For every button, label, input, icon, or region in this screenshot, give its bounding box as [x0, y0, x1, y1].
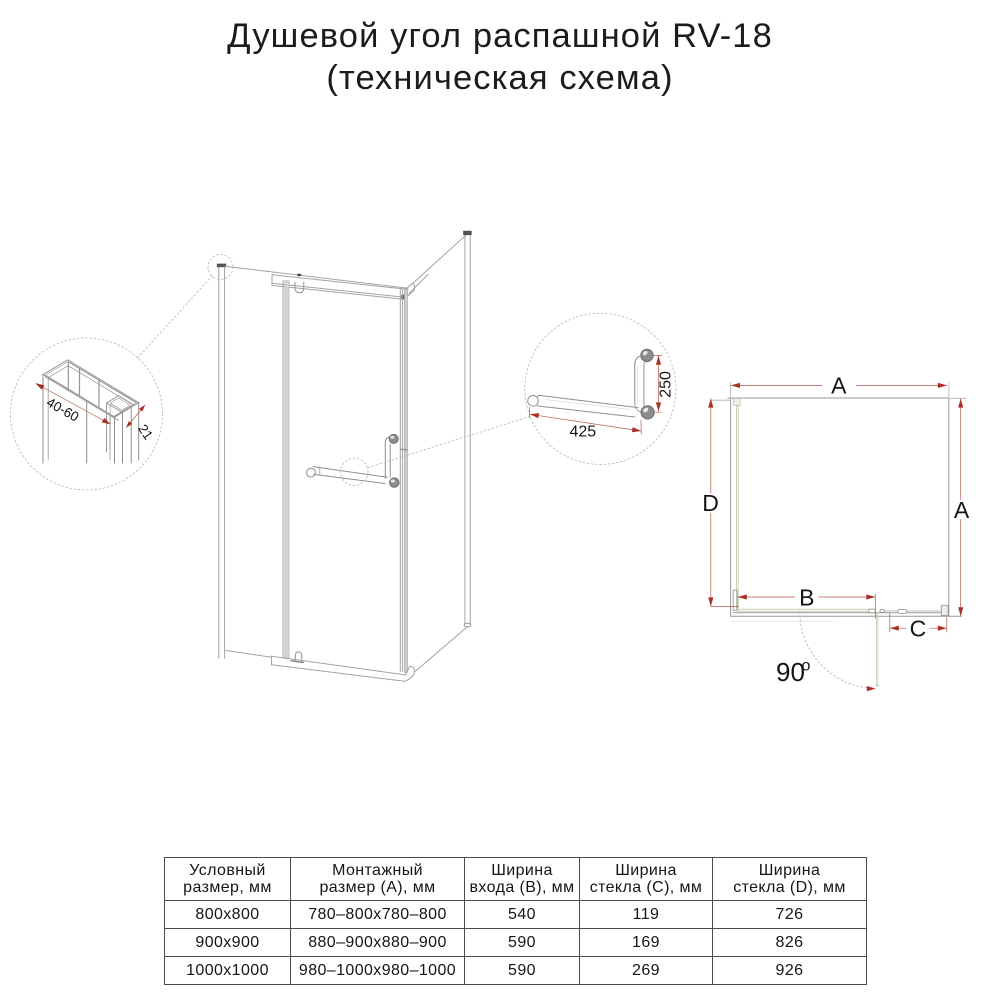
svg-text:o: o — [802, 658, 811, 675]
svg-text:D: D — [702, 490, 719, 516]
svg-text:C: C — [910, 616, 927, 642]
svg-text:40-60: 40-60 — [44, 395, 81, 425]
svg-text:A: A — [954, 497, 970, 523]
svg-text:A: A — [831, 373, 847, 399]
svg-text:425: 425 — [569, 423, 596, 440]
svg-text:250: 250 — [658, 371, 675, 398]
svg-text:21: 21 — [135, 422, 156, 443]
svg-text:B: B — [799, 584, 814, 610]
